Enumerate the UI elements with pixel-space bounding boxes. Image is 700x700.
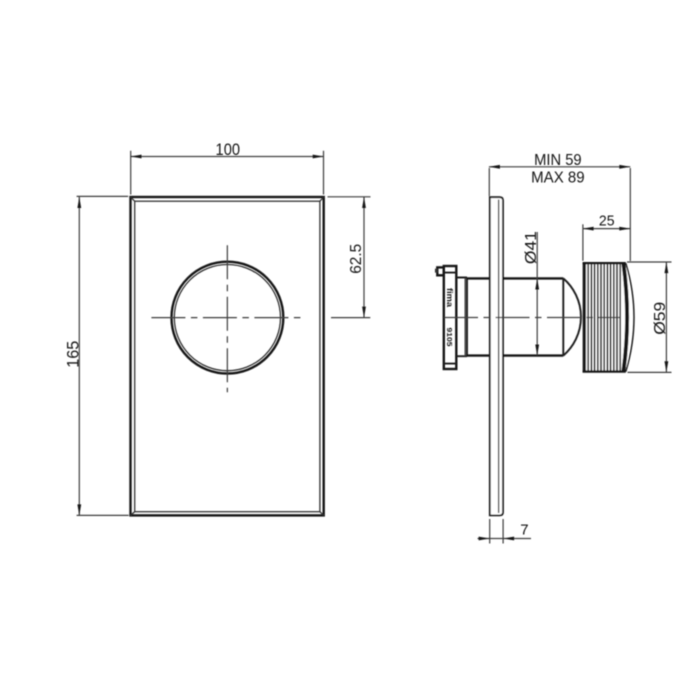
svg-text:7: 7 bbox=[520, 522, 528, 539]
svg-text:fima: fima bbox=[445, 288, 454, 308]
svg-text:165: 165 bbox=[64, 341, 83, 368]
svg-text:100: 100 bbox=[216, 140, 241, 159]
svg-text:Ø59: Ø59 bbox=[652, 302, 669, 335]
svg-text:25: 25 bbox=[599, 212, 615, 229]
svg-text:MAX 89: MAX 89 bbox=[531, 170, 585, 187]
svg-text:Ø41: Ø41 bbox=[523, 231, 540, 264]
svg-text:9105: 9105 bbox=[445, 328, 454, 347]
svg-text:62.5: 62.5 bbox=[348, 244, 365, 274]
